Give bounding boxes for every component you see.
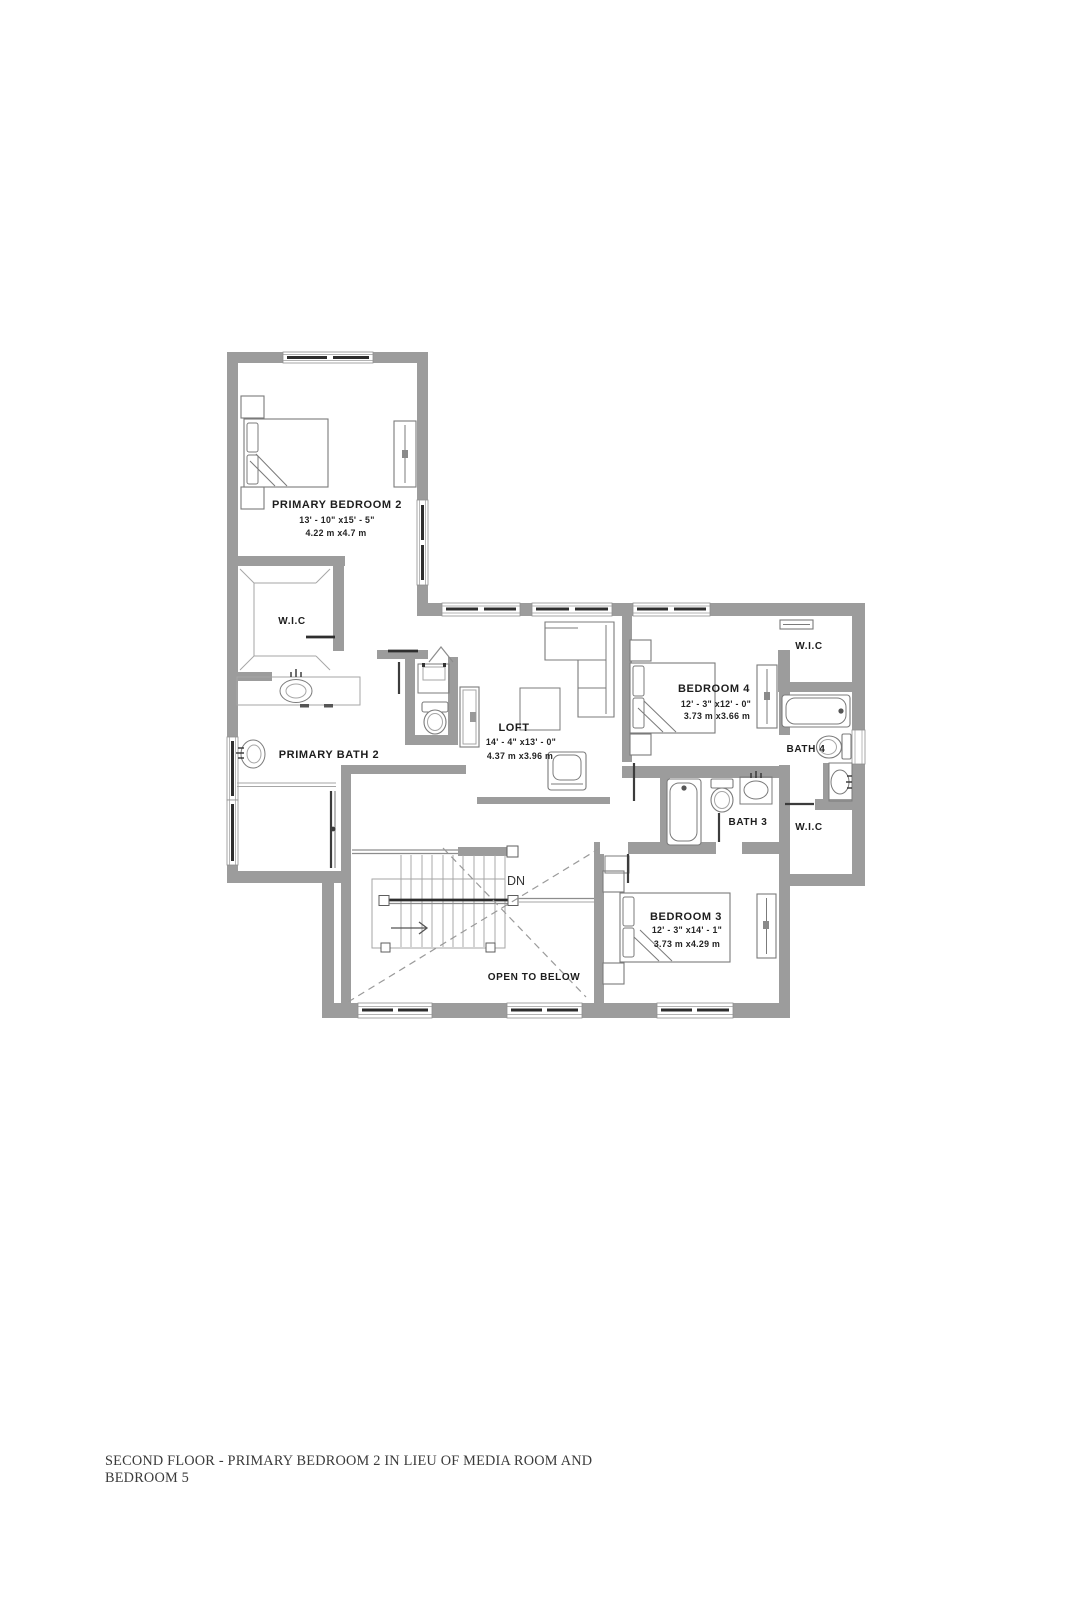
- armchair: [548, 752, 586, 790]
- nightstand: [241, 487, 264, 509]
- floorplan-page: PRIMARY BEDROOM 2 13' - 10" x15' - 5" 4.…: [0, 0, 1067, 1600]
- room-dim-m: 3.73 m x4.29 m: [654, 939, 720, 949]
- room-label: PRIMARY BEDROOM 2: [272, 499, 402, 511]
- window: [442, 603, 520, 616]
- bed: [244, 419, 328, 487]
- window: [633, 603, 710, 616]
- sink: [280, 680, 312, 703]
- caption: SECOND FLOOR - PRIMARY BEDROOM 2 IN LIEU…: [105, 1453, 592, 1486]
- caption-line-1: SECOND FLOOR - PRIMARY BEDROOM 2 IN LIEU…: [105, 1453, 592, 1469]
- dresser: [757, 665, 777, 728]
- room-label: W.I.C: [795, 641, 822, 652]
- faucet-icon: [291, 669, 301, 677]
- bathtub: [782, 695, 850, 727]
- room-label: LOFT: [498, 722, 529, 734]
- window: [507, 1003, 582, 1018]
- closet-bottom-left: [331, 791, 336, 868]
- room-label: BEDROOM 4: [678, 683, 750, 695]
- toilet: [711, 779, 733, 812]
- vanity: [237, 677, 360, 705]
- room-dim-m: 4.22 m x4.7 m: [305, 528, 366, 538]
- caption-line-2: BEDROOM 5: [105, 1470, 189, 1486]
- nightstand: [630, 640, 651, 661]
- room-dim-ft: 12' - 3" x12' - 0": [681, 699, 751, 709]
- dresser: [394, 421, 416, 487]
- floor-plan-drawing: PRIMARY BEDROOM 2 13' - 10" x15' - 5" 4.…: [0, 0, 1067, 1600]
- bathtub: [667, 779, 701, 845]
- room-label: BEDROOM 3: [650, 911, 722, 923]
- toilet: [422, 702, 448, 734]
- window: [417, 500, 428, 585]
- console: [460, 687, 479, 747]
- window: [227, 737, 238, 800]
- room-label: PRIMARY BATH 2: [279, 749, 379, 761]
- stair-outline: [372, 879, 505, 948]
- sink-vanity: [829, 763, 852, 801]
- room-label: W.I.C: [278, 616, 305, 627]
- window: [358, 1003, 432, 1018]
- room-label: BATH 3: [729, 817, 768, 828]
- window: [283, 352, 373, 363]
- room-dim-m: 3.73 m x3.66 m: [684, 711, 750, 721]
- nightstand: [630, 734, 651, 755]
- labels: PRIMARY BEDROOM 2 13' - 10" x15' - 5" 4.…: [272, 499, 825, 983]
- room-label: W.I.C: [795, 822, 822, 833]
- room-primary-bedroom-2: [241, 396, 416, 509]
- shower: [418, 663, 449, 693]
- window: [852, 730, 865, 764]
- dresser: [757, 894, 776, 958]
- wic-bedroom-4: [780, 620, 813, 629]
- room-loft: [460, 622, 614, 790]
- stairs-down-label: DN: [507, 874, 525, 888]
- room-label: BATH 4: [787, 744, 826, 755]
- room-bath-3: [667, 771, 772, 845]
- nightstand: [603, 871, 624, 892]
- door-handle: [331, 827, 336, 832]
- nightstand: [241, 396, 264, 418]
- down-arrow: [391, 922, 427, 934]
- window: [657, 1003, 733, 1018]
- window: [227, 800, 238, 865]
- room-dim-ft: 14' - 4" x13' - 0": [486, 737, 556, 747]
- room-dim-ft: 12' - 3" x14' - 1": [652, 925, 722, 935]
- room-dim-m: 4.37 m x3.96 m: [487, 751, 553, 761]
- sectional-sofa: [545, 622, 614, 717]
- room-dim-ft: 13' - 10" x15' - 5": [299, 515, 374, 525]
- stairs: [352, 846, 594, 952]
- open-to-below-label: OPEN TO BELOW: [488, 972, 581, 983]
- nightstand: [603, 963, 624, 984]
- window: [532, 603, 612, 616]
